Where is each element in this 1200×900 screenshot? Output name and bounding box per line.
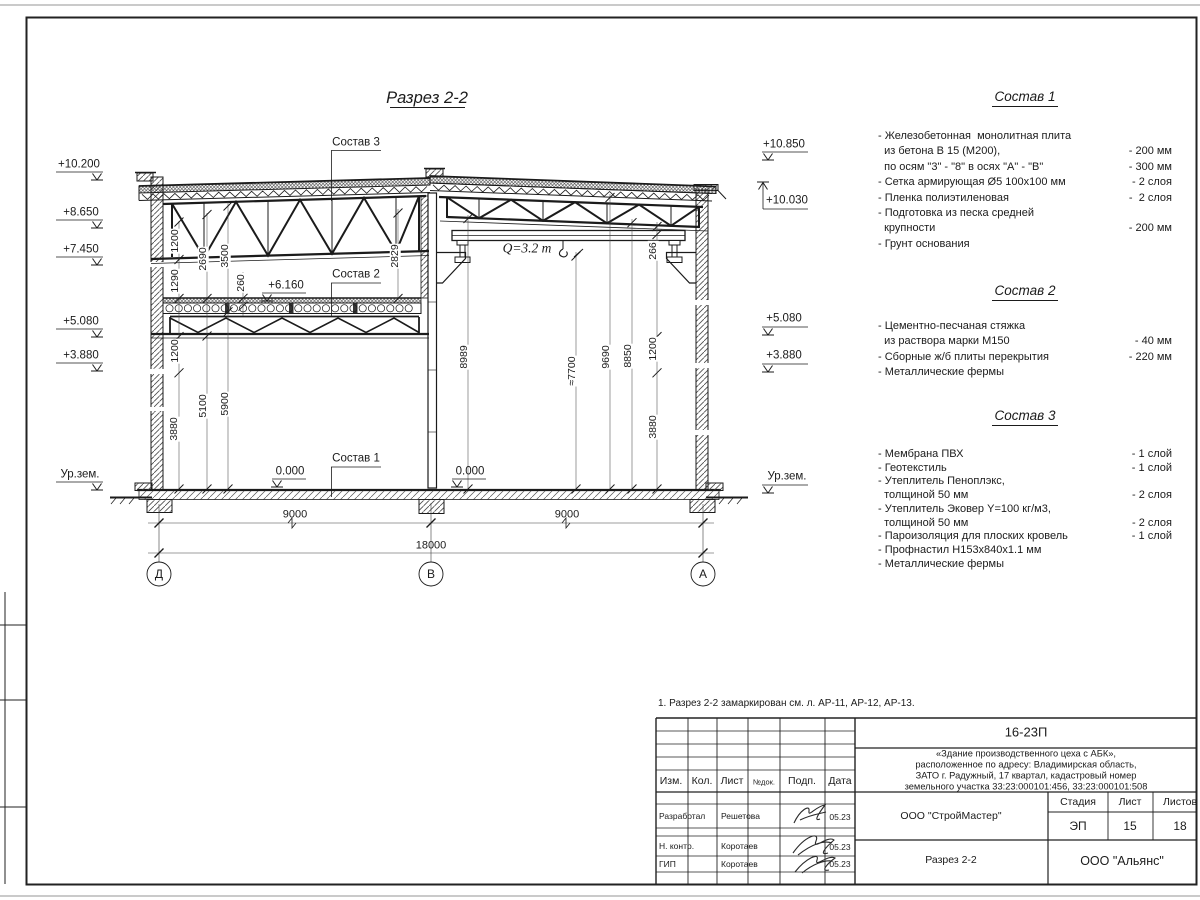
layer-name: - Металлические фермы bbox=[878, 365, 1004, 380]
layer-value: - 1 слой bbox=[1132, 530, 1172, 544]
elev-left-4: +5.080 bbox=[63, 316, 99, 328]
composition-line: по осям "3" - "8" в осях "А" - "В"- 300 … bbox=[878, 160, 1172, 175]
dim-8989: 8989 bbox=[459, 344, 470, 369]
row-date: 05.23 bbox=[829, 860, 850, 869]
doc-code: 16-23П bbox=[1005, 726, 1048, 739]
composition-line: - Железобетонная монолитная плита bbox=[878, 129, 1172, 144]
composition-line: - Геотекстиль- 1 слой bbox=[878, 462, 1172, 476]
elev-right-2: +10.030 bbox=[766, 195, 808, 207]
row-role: Разработал bbox=[659, 812, 705, 821]
composition-line: толщиной 50 мм- 2 слоя bbox=[878, 517, 1172, 531]
dim-1200-a: 1200 bbox=[170, 228, 181, 253]
dim-7700: ≈7700 bbox=[567, 355, 578, 386]
project-desc-line: расположенное по адресу: Владимирская об… bbox=[915, 760, 1136, 769]
layer-name: - Мембрана ПВХ bbox=[878, 448, 963, 462]
axis-bubble-d: Д bbox=[155, 568, 163, 580]
col-header-podp: Подп. bbox=[788, 776, 816, 787]
leader-label-sostav-1: Состав 1 bbox=[332, 453, 380, 465]
composition-line: крупности- 200 мм bbox=[878, 221, 1172, 236]
dim-5900: 5900 bbox=[220, 391, 231, 416]
elev-left-1: +10.200 bbox=[58, 159, 100, 171]
composition-line: - Металлические фермы bbox=[878, 365, 1172, 380]
dim-2829: 2829 bbox=[390, 243, 401, 268]
crane-capacity: Q=3.2 т bbox=[503, 241, 552, 255]
layer-name: - Железобетонная монолитная плита bbox=[878, 129, 1071, 144]
sheet-number: 15 bbox=[1123, 820, 1136, 832]
composition-line: - Сборные ж/б плиты перекрытия- 220 мм bbox=[878, 350, 1172, 365]
composition-line: - Мембрана ПВХ- 1 слой bbox=[878, 448, 1172, 462]
row-role: Н. контр. bbox=[659, 842, 694, 851]
listov-label: Листов bbox=[1163, 797, 1197, 808]
row-name: Коротаев bbox=[721, 842, 758, 851]
dim-8850: 8850 bbox=[623, 343, 634, 368]
layer-name: - Сборные ж/б плиты перекрытия bbox=[878, 350, 1049, 365]
layer-name: - Геотекстиль bbox=[878, 462, 947, 476]
composition-title: Состав 1 bbox=[992, 89, 1059, 107]
col-header-ndok: №док. bbox=[753, 778, 775, 786]
layer-name: - Подготовка из песка средней bbox=[878, 206, 1034, 221]
project-desc-line: ЗАТО г. Радужный, 17 квартал, кадастровы… bbox=[916, 771, 1137, 780]
sheets-total: 18 bbox=[1173, 820, 1186, 832]
layer-value: - 2 слоя bbox=[1132, 489, 1172, 503]
layer-name: - Утеплитель Эковер Y=100 кг/м3, bbox=[878, 503, 1051, 517]
list-label: Лист bbox=[1119, 797, 1142, 808]
elev-left-2: +8.650 bbox=[63, 207, 99, 219]
composition-3: Состав 3- Мембрана ПВХ- 1 слой- Геотекст… bbox=[878, 408, 1172, 571]
elev-zero-left: 0.000 bbox=[276, 466, 305, 478]
drawing-note: 1. Разрез 2-2 замаркирован см. л. АР-11,… bbox=[658, 699, 915, 709]
composition-2: Состав 2- Цементно-песчаная стяжка из ра… bbox=[878, 283, 1172, 381]
sheet-title: Разрез 2-2 bbox=[925, 855, 977, 866]
elev-left-3: +7.450 bbox=[63, 244, 99, 256]
col-header-list: Лист bbox=[721, 776, 744, 787]
dim-span-left: 9000 bbox=[283, 510, 307, 521]
org-customer: ООО "Альянс" bbox=[1080, 855, 1164, 868]
axis-bubble-a: А bbox=[699, 568, 707, 580]
axis-bubble-v: В bbox=[427, 568, 435, 580]
composition-title: Состав 3 bbox=[992, 408, 1059, 426]
dim-1200-c: 1200 bbox=[648, 336, 659, 361]
composition-line: из раствора марки М150- 40 мм bbox=[878, 334, 1172, 349]
row-name: Коротаев bbox=[721, 860, 758, 869]
elev-left-ground: Ур.зем. bbox=[60, 469, 99, 481]
composition-line: - Утеплитель Эковер Y=100 кг/м3, bbox=[878, 503, 1172, 517]
layer-value: - 40 мм bbox=[1135, 334, 1172, 349]
composition-line: - Грунт основания bbox=[878, 237, 1172, 252]
layer-value: - 1 слой bbox=[1132, 462, 1172, 476]
dim-266: 266 bbox=[648, 241, 659, 261]
layer-value: - 1 слой bbox=[1132, 448, 1172, 462]
composition-line: толщиной 50 мм- 2 слоя bbox=[878, 489, 1172, 503]
layer-name: - Пленка полиэтиленовая bbox=[878, 191, 1009, 206]
layer-name: из раствора марки М150 bbox=[878, 334, 1010, 349]
row-date: 05.23 bbox=[829, 843, 850, 852]
composition-line: - Утеплитель Пеноплэкс, bbox=[878, 475, 1172, 489]
layer-name: - Сетка армирующая Ø5 100х100 мм bbox=[878, 175, 1066, 190]
composition-line: - Металлические фермы bbox=[878, 558, 1172, 572]
layer-value: - 200 мм bbox=[1129, 221, 1172, 236]
col-header-izm: Изм. bbox=[660, 776, 683, 787]
project-desc-line: земельного участка 33:23:000101:456, 33:… bbox=[905, 782, 1148, 791]
org-designer: ООО "СтройМастер" bbox=[900, 811, 1001, 822]
row-name: Решетова bbox=[721, 812, 760, 821]
elev-right-1: +10.850 bbox=[763, 139, 805, 151]
elev-left-5: +3.880 bbox=[63, 350, 99, 362]
layer-value: - 2 слоя bbox=[1132, 175, 1172, 190]
layer-name: - Грунт основания bbox=[878, 237, 970, 252]
composition-line: - Подготовка из песка средней bbox=[878, 206, 1172, 221]
elev-floor2: +6.160 bbox=[268, 280, 304, 292]
composition-title: Состав 2 bbox=[992, 283, 1059, 301]
layer-name: - Пароизоляция для плоских кровель bbox=[878, 530, 1068, 544]
layer-name: - Профнастил Н153х840х1.1 мм bbox=[878, 544, 1041, 558]
layer-name: из бетона В 15 (М200), bbox=[878, 144, 1000, 159]
layer-name: крупности bbox=[878, 221, 935, 236]
dim-5100: 5100 bbox=[198, 393, 209, 418]
drawing-sheet: Разрез 2-2Состав 3Состав 2Состав 1+10.20… bbox=[0, 0, 1200, 900]
elev-zero-right: 0.000 bbox=[456, 466, 485, 478]
dim-3880-b: 3880 bbox=[648, 414, 659, 439]
layer-name: - Утеплитель Пеноплэкс, bbox=[878, 475, 1005, 489]
composition-line: - Цементно-песчаная стяжка bbox=[878, 319, 1172, 334]
elev-right-4: +3.880 bbox=[766, 350, 802, 362]
stage-label: Стадия bbox=[1060, 797, 1096, 808]
composition-line: - Пароизоляция для плоских кровель- 1 сл… bbox=[878, 530, 1172, 544]
layer-value: - 2 слоя bbox=[1132, 517, 1172, 531]
layer-value: - 200 мм bbox=[1129, 144, 1172, 159]
dim-1200-b: 1200 bbox=[170, 338, 181, 363]
composition-1: Состав 1- Железобетонная монолитная плит… bbox=[878, 89, 1172, 252]
layer-value: - 300 мм bbox=[1129, 160, 1172, 175]
dim-260: 260 bbox=[236, 273, 247, 293]
layer-name: толщиной 50 мм bbox=[878, 517, 968, 531]
elev-right-3: +5.080 bbox=[766, 313, 802, 325]
leader-label-sostav-2: Состав 2 bbox=[332, 269, 380, 281]
col-header-kol: Кол. bbox=[692, 776, 713, 787]
row-date: 05.23 bbox=[829, 813, 850, 822]
layer-name: - Металлические фермы bbox=[878, 558, 1004, 572]
leader-label-sostav-3: Состав 3 bbox=[332, 137, 380, 149]
dim-9690: 9690 bbox=[601, 344, 612, 369]
elev-right-ground: Ур.зем. bbox=[767, 471, 806, 483]
col-header-data: Дата bbox=[828, 776, 851, 787]
composition-line: - Сетка армирующая Ø5 100х100 мм- 2 слоя bbox=[878, 175, 1172, 190]
dim-total: 18000 bbox=[416, 541, 447, 552]
dim-span-right: 9000 bbox=[555, 510, 579, 521]
dim-2690: 2690 bbox=[198, 246, 209, 271]
layer-name: по осям "3" - "8" в осях "А" - "В" bbox=[878, 160, 1043, 175]
composition-line: - Пленка полиэтиленовая- 2 слоя bbox=[878, 191, 1172, 206]
project-desc-line: «Здание производственного цеха с АБК», bbox=[936, 749, 1116, 758]
composition-line: - Профнастил Н153х840х1.1 мм bbox=[878, 544, 1172, 558]
dim-3880-a: 3880 bbox=[169, 416, 180, 441]
layer-name: - Цементно-песчаная стяжка bbox=[878, 319, 1025, 334]
layer-name: толщиной 50 мм bbox=[878, 489, 968, 503]
drawing-title: Разрез 2-2 bbox=[386, 90, 468, 107]
layer-value: - 220 мм bbox=[1129, 350, 1172, 365]
composition-line: из бетона В 15 (М200),- 200 мм bbox=[878, 144, 1172, 159]
row-role: ГИП bbox=[659, 860, 676, 869]
stage-value: ЭП bbox=[1069, 820, 1086, 832]
layer-value: - 2 слоя bbox=[1129, 191, 1172, 206]
dim-1290: 1290 bbox=[170, 268, 181, 293]
dim-3500: 3500 bbox=[220, 243, 231, 268]
